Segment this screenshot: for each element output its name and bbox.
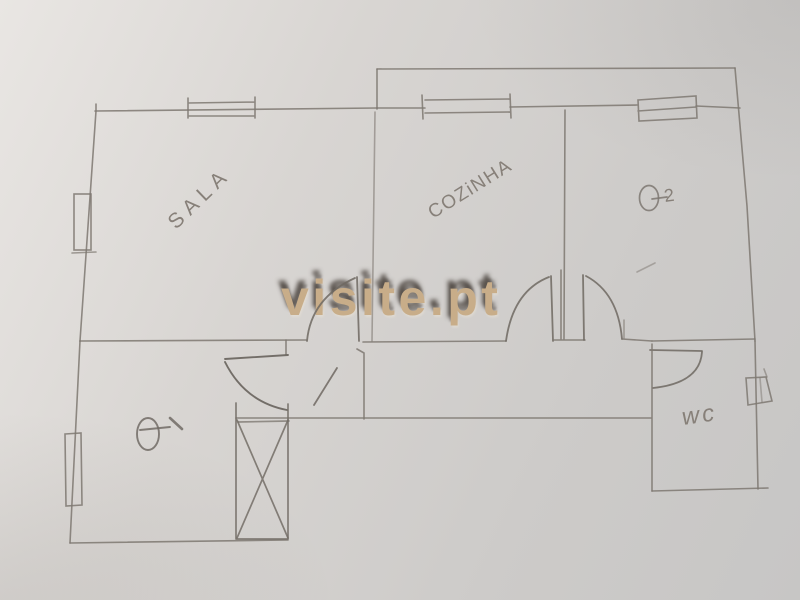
- svg-text:SALA: SALA: [163, 163, 235, 234]
- svg-text:wc: wc: [680, 399, 719, 431]
- svg-text:2: 2: [663, 185, 676, 206]
- svg-text:COZiNHA: COZiNHA: [425, 155, 517, 223]
